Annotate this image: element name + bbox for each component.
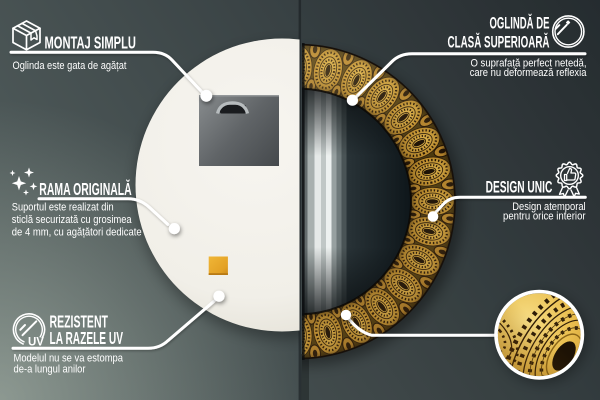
svg-text:OGLINDĂ DE: OGLINDĂ DE xyxy=(490,13,550,32)
svg-text:CLASĂ SUPERIOARĂ: CLASĂ SUPERIOARĂ xyxy=(448,32,550,51)
svg-text:pentru orice interior: pentru orice interior xyxy=(503,211,586,223)
svg-text:Suportul este realizat din: Suportul este realizat din xyxy=(12,202,114,214)
svg-text:Oglinda este gata de agățat: Oglinda este gata de agățat xyxy=(13,60,127,72)
svg-text:DESIGN UNIC: DESIGN UNIC xyxy=(486,178,553,196)
svg-text:de 4 mm, cu agățători dedicate: de 4 mm, cu agățători dedicate xyxy=(12,226,142,238)
svg-text:UV: UV xyxy=(28,337,44,349)
svg-text:MONTAJ SIMPLU: MONTAJ SIMPLU xyxy=(45,33,137,53)
svg-text:de-a lungul anilor: de-a lungul anilor xyxy=(14,363,86,375)
svg-text:RAMA ORIGINALĂ: RAMA ORIGINALĂ xyxy=(39,178,132,199)
svg-text:sticlă securizată cu grosimea: sticlă securizată cu grosimea xyxy=(12,214,132,226)
svg-text:care nu deformează reflexia: care nu deformează reflexia xyxy=(470,67,587,79)
svg-text:LA RAZELE UV: LA RAZELE UV xyxy=(50,328,124,348)
